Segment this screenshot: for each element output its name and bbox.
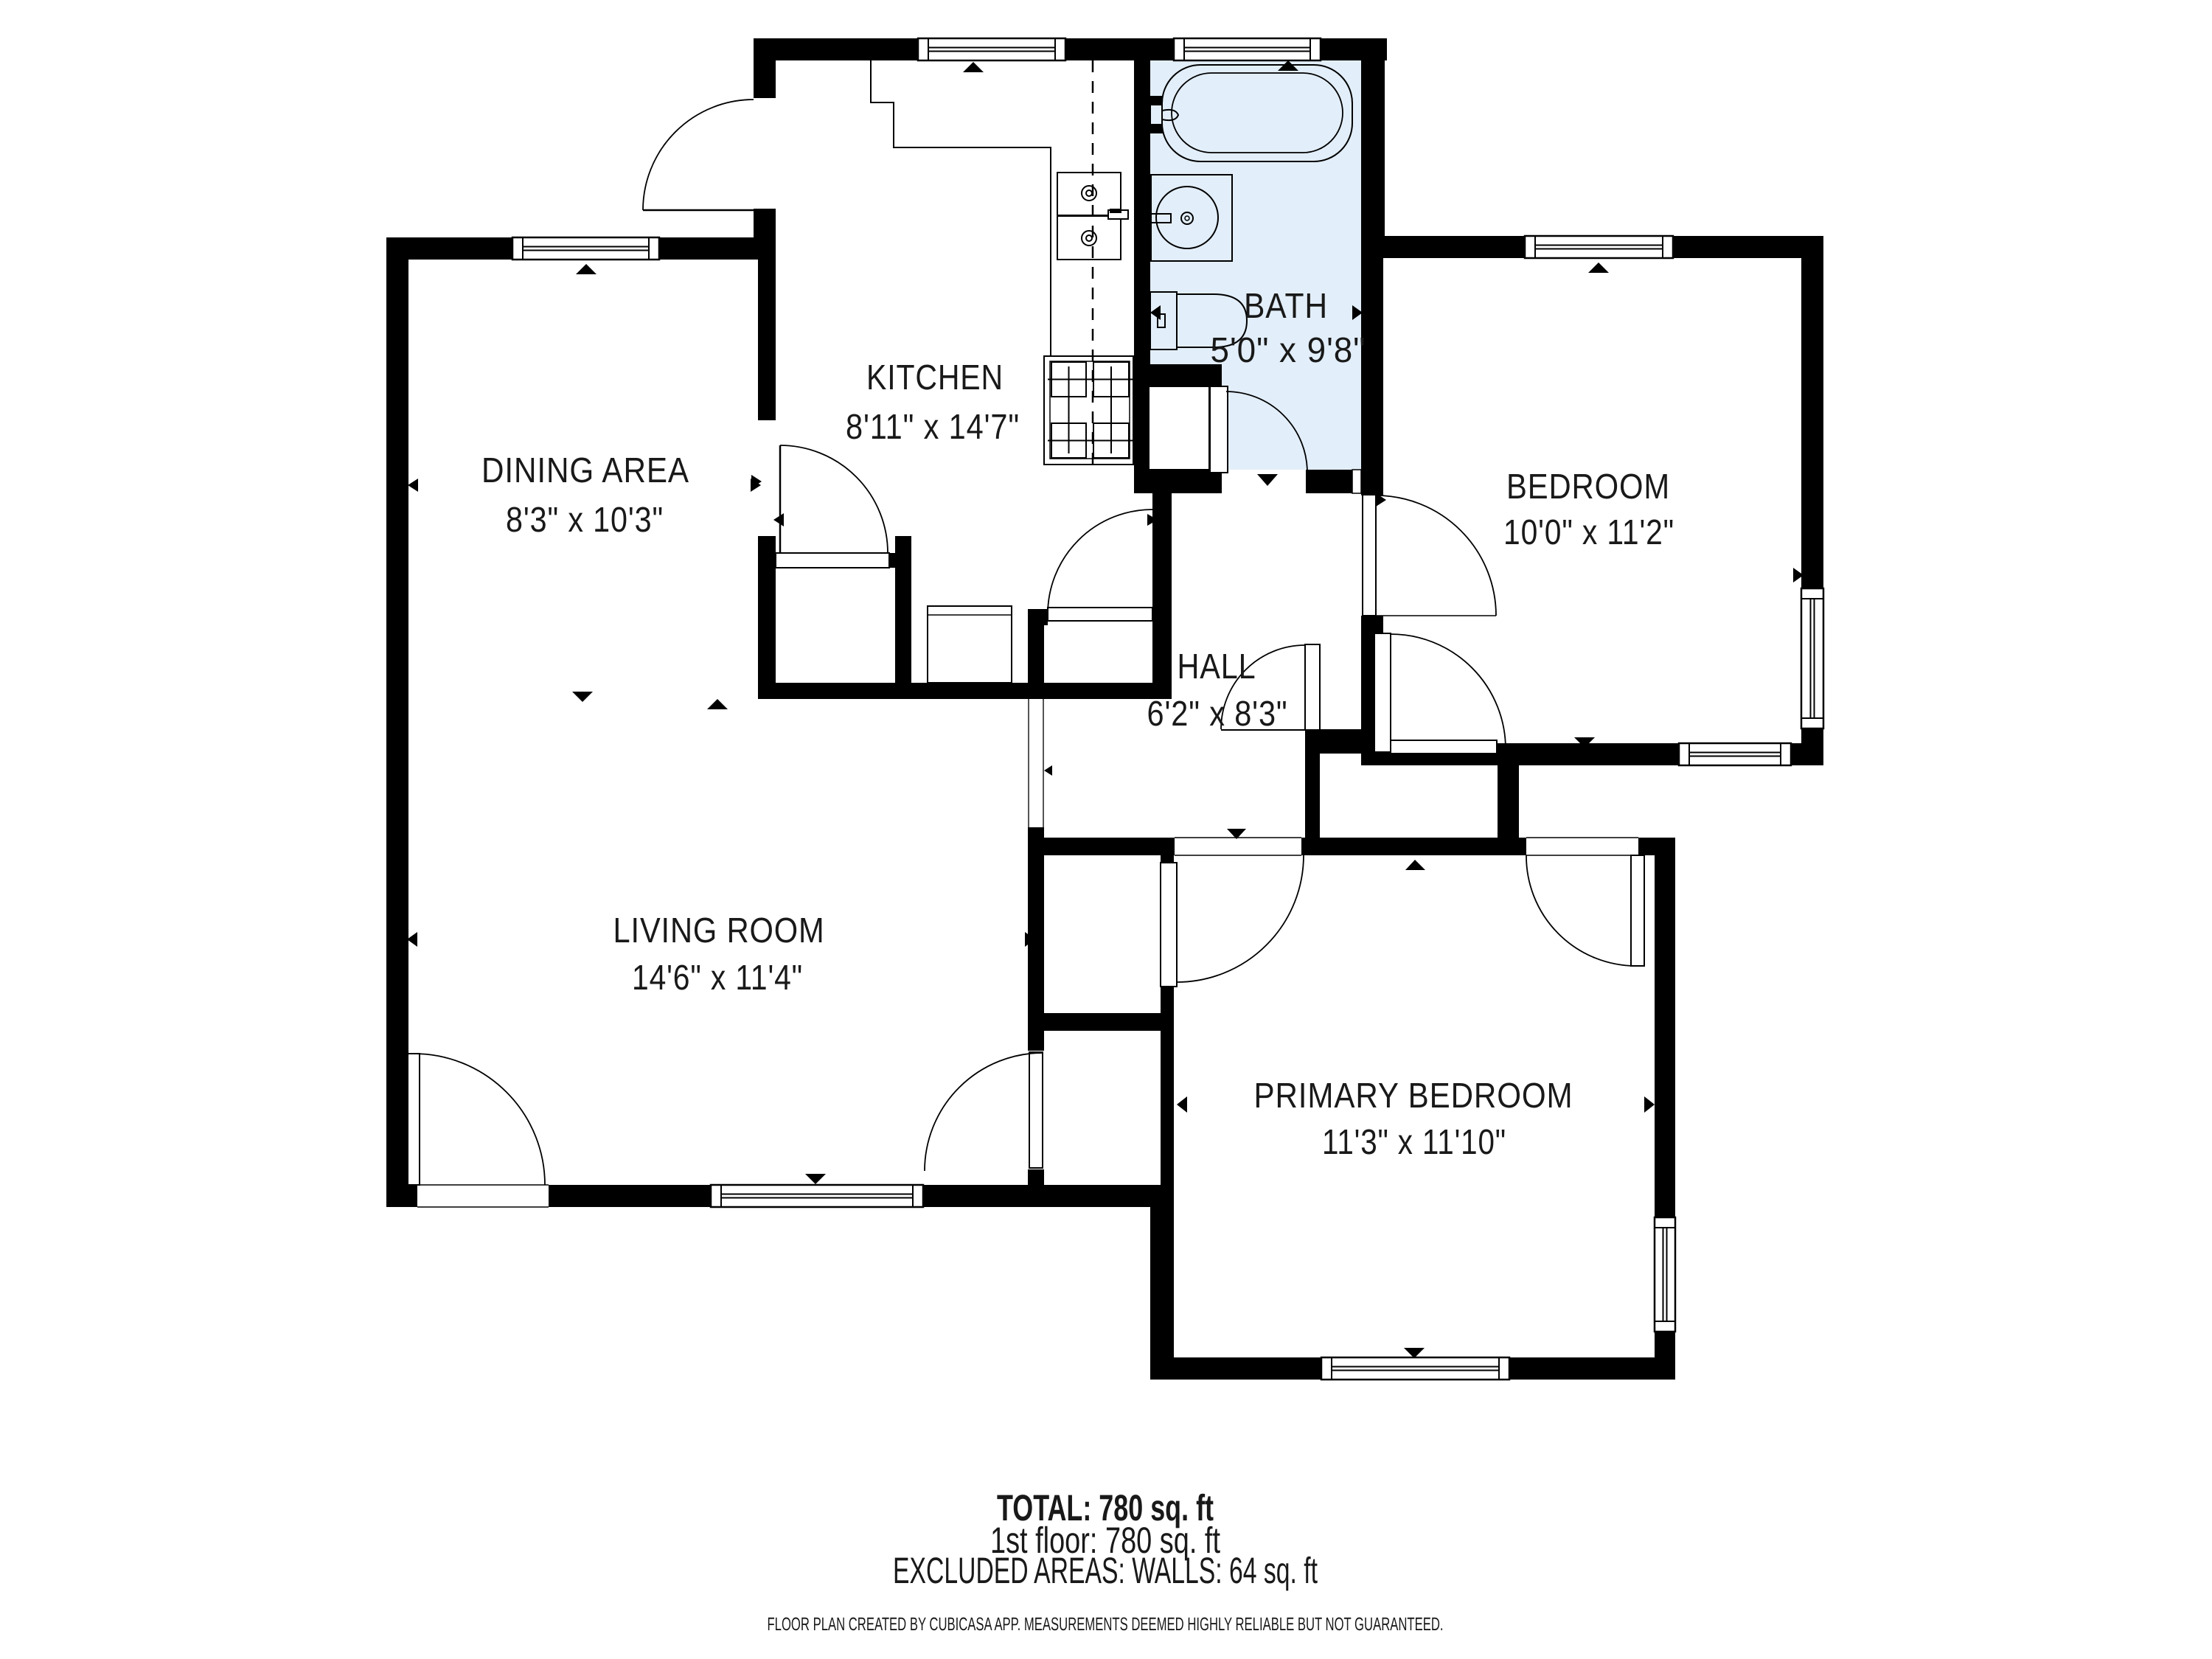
svg-text:10'0" x 11'2": 10'0" x 11'2" bbox=[1503, 513, 1674, 552]
svg-text:DINING AREA: DINING AREA bbox=[481, 451, 689, 490]
svg-text:8'11" x 14'7": 8'11" x 14'7" bbox=[846, 408, 1020, 447]
svg-text:FLOOR PLAN CREATED BY CUBICASA: FLOOR PLAN CREATED BY CUBICASA APP. MEAS… bbox=[768, 1614, 1444, 1635]
svg-text:14'6" x 11'4": 14'6" x 11'4" bbox=[632, 959, 803, 998]
svg-text:EXCLUDED AREAS: WALLS: 64 sq.: EXCLUDED AREAS: WALLS: 64 sq. ft bbox=[893, 1550, 1318, 1591]
svg-text:BEDROOM: BEDROOM bbox=[1506, 467, 1670, 507]
svg-text:6'2" x 8'3": 6'2" x 8'3" bbox=[1147, 695, 1288, 734]
svg-text:11'3" x 11'10": 11'3" x 11'10" bbox=[1322, 1123, 1506, 1162]
svg-text:LIVING ROOM: LIVING ROOM bbox=[613, 911, 825, 950]
svg-text:8'3" x 10'3": 8'3" x 10'3" bbox=[506, 501, 664, 540]
svg-text:5'0" x 9'8": 5'0" x 9'8" bbox=[1211, 331, 1366, 370]
svg-text:HALL: HALL bbox=[1178, 647, 1256, 686]
svg-text:KITCHEN: KITCHEN bbox=[866, 358, 1004, 397]
svg-text:BATH: BATH bbox=[1244, 287, 1328, 326]
svg-text:PRIMARY BEDROOM: PRIMARY BEDROOM bbox=[1254, 1077, 1573, 1116]
